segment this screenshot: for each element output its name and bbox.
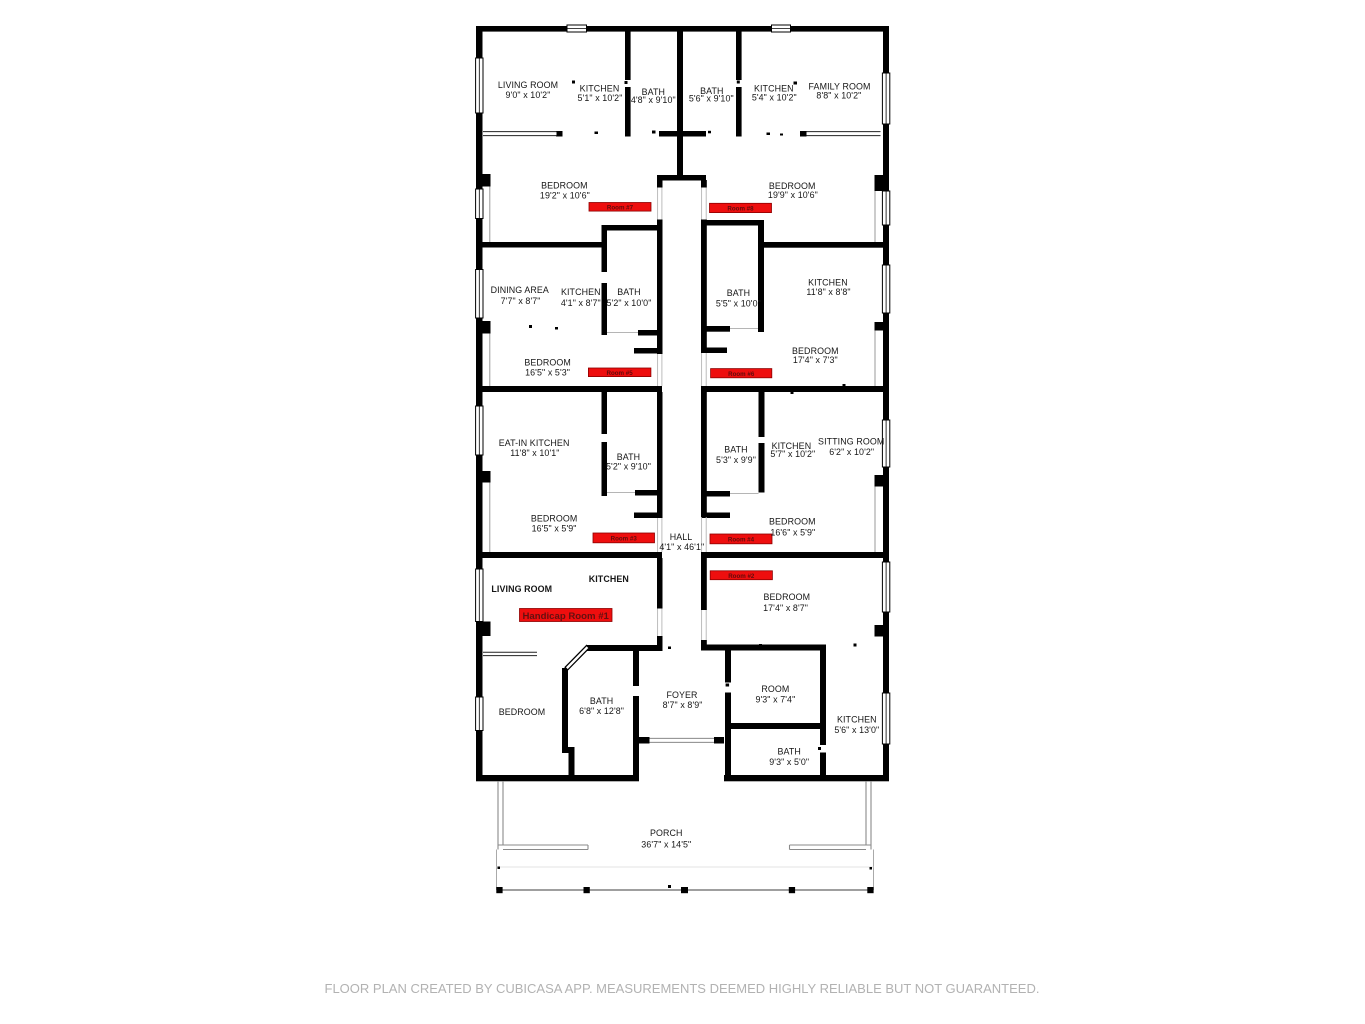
svg-text:BATH: BATH — [617, 287, 640, 297]
svg-text:HALL: HALL — [670, 532, 693, 542]
svg-text:FLOOR PLAN CREATED BY CUBICASA: FLOOR PLAN CREATED BY CUBICASA APP. MEAS… — [325, 981, 1040, 996]
svg-text:KITCHEN: KITCHEN — [837, 715, 877, 725]
svg-text:5'2" x 9'10": 5'2" x 9'10" — [606, 461, 651, 471]
svg-text:9'3" x 7'4": 9'3" x 7'4" — [755, 695, 795, 705]
svg-text:9'0" x 10'2": 9'0" x 10'2" — [506, 90, 551, 100]
svg-text:Room #3: Room #3 — [611, 536, 638, 543]
svg-text:4'1" x 46'1": 4'1" x 46'1" — [659, 542, 704, 552]
svg-text:Room #2: Room #2 — [728, 573, 755, 580]
svg-text:17'4" x 8'7": 17'4" x 8'7" — [763, 603, 808, 613]
svg-text:BEDROOM: BEDROOM — [531, 513, 578, 523]
svg-text:LIVING ROOM: LIVING ROOM — [491, 584, 552, 594]
svg-text:16'6" x 5'9": 16'6" x 5'9" — [770, 527, 815, 537]
svg-text:BEDROOM: BEDROOM — [499, 707, 546, 717]
svg-text:BEDROOM: BEDROOM — [524, 358, 571, 368]
svg-text:FOYER: FOYER — [666, 690, 697, 700]
svg-text:5'6" x 13'0": 5'6" x 13'0" — [834, 725, 879, 735]
svg-text:16'5" x 5'9": 16'5" x 5'9" — [532, 524, 577, 534]
svg-text:BEDROOM: BEDROOM — [769, 517, 816, 527]
svg-text:5'4" x 10'2": 5'4" x 10'2" — [752, 93, 797, 103]
svg-text:Room #7: Room #7 — [607, 204, 634, 211]
svg-text:SITTING ROOM: SITTING ROOM — [818, 437, 884, 447]
svg-text:BATH: BATH — [724, 445, 747, 455]
svg-text:Room #4: Room #4 — [728, 537, 755, 544]
svg-text:LIVING ROOM: LIVING ROOM — [498, 80, 558, 90]
svg-text:BEDROOM: BEDROOM — [764, 592, 811, 602]
svg-text:BATH: BATH — [777, 747, 800, 757]
svg-text:5'1" x 10'2": 5'1" x 10'2" — [578, 93, 623, 103]
svg-text:Room #5: Room #5 — [607, 370, 634, 377]
svg-text:7'7" x 8'7": 7'7" x 8'7" — [501, 296, 541, 306]
svg-text:BATH: BATH — [590, 696, 613, 706]
svg-text:6'8" x 12'8": 6'8" x 12'8" — [579, 706, 624, 716]
svg-text:6'2" x 10'2": 6'2" x 10'2" — [829, 447, 874, 457]
svg-text:16'5" x 5'3": 16'5" x 5'3" — [525, 368, 570, 378]
svg-text:5'2" x 10'0": 5'2" x 10'0" — [607, 298, 652, 308]
svg-text:PORCH: PORCH — [650, 828, 683, 838]
svg-text:4'1" x 8'7": 4'1" x 8'7" — [561, 298, 601, 308]
svg-text:19'2" x 10'6": 19'2" x 10'6" — [540, 191, 590, 201]
svg-text:17'4" x 7'3": 17'4" x 7'3" — [793, 355, 838, 365]
svg-text:5'5" x 10'0": 5'5" x 10'0" — [716, 298, 761, 308]
svg-text:8'7" x 8'9": 8'7" x 8'9" — [663, 700, 703, 710]
svg-text:DINING AREA: DINING AREA — [491, 285, 549, 295]
svg-text:KITCHEN: KITCHEN — [561, 287, 601, 297]
svg-text:5'3" x 9'9": 5'3" x 9'9" — [716, 455, 756, 465]
svg-text:KITCHEN: KITCHEN — [808, 278, 848, 288]
svg-text:11'8" x 8'8": 11'8" x 8'8" — [806, 287, 850, 297]
svg-text:5'6" x 9'10": 5'6" x 9'10" — [689, 94, 734, 104]
svg-text:EAT-IN KITCHEN: EAT-IN KITCHEN — [499, 438, 570, 448]
svg-text:BATH: BATH — [727, 288, 750, 298]
svg-text:5'7" x 10'2": 5'7" x 10'2" — [770, 449, 815, 459]
svg-text:ROOM: ROOM — [761, 684, 789, 694]
svg-text:8'8" x 10'2": 8'8" x 10'2" — [816, 90, 861, 100]
svg-text:36'7" x 14'5": 36'7" x 14'5" — [641, 839, 691, 849]
svg-text:9'3" x 5'0": 9'3" x 5'0" — [769, 757, 809, 767]
svg-text:4'8" x 9'10": 4'8" x 9'10" — [631, 95, 676, 105]
svg-text:KITCHEN: KITCHEN — [589, 574, 629, 584]
svg-text:11'8" x 10'1": 11'8" x 10'1" — [510, 448, 559, 458]
svg-text:19'9" x 10'6": 19'9" x 10'6" — [768, 190, 818, 200]
svg-text:Room #8: Room #8 — [727, 206, 754, 213]
svg-text:Handicap Room #1: Handicap Room #1 — [523, 611, 610, 622]
svg-text:Room #6: Room #6 — [728, 371, 755, 378]
svg-text:BEDROOM: BEDROOM — [541, 180, 588, 190]
